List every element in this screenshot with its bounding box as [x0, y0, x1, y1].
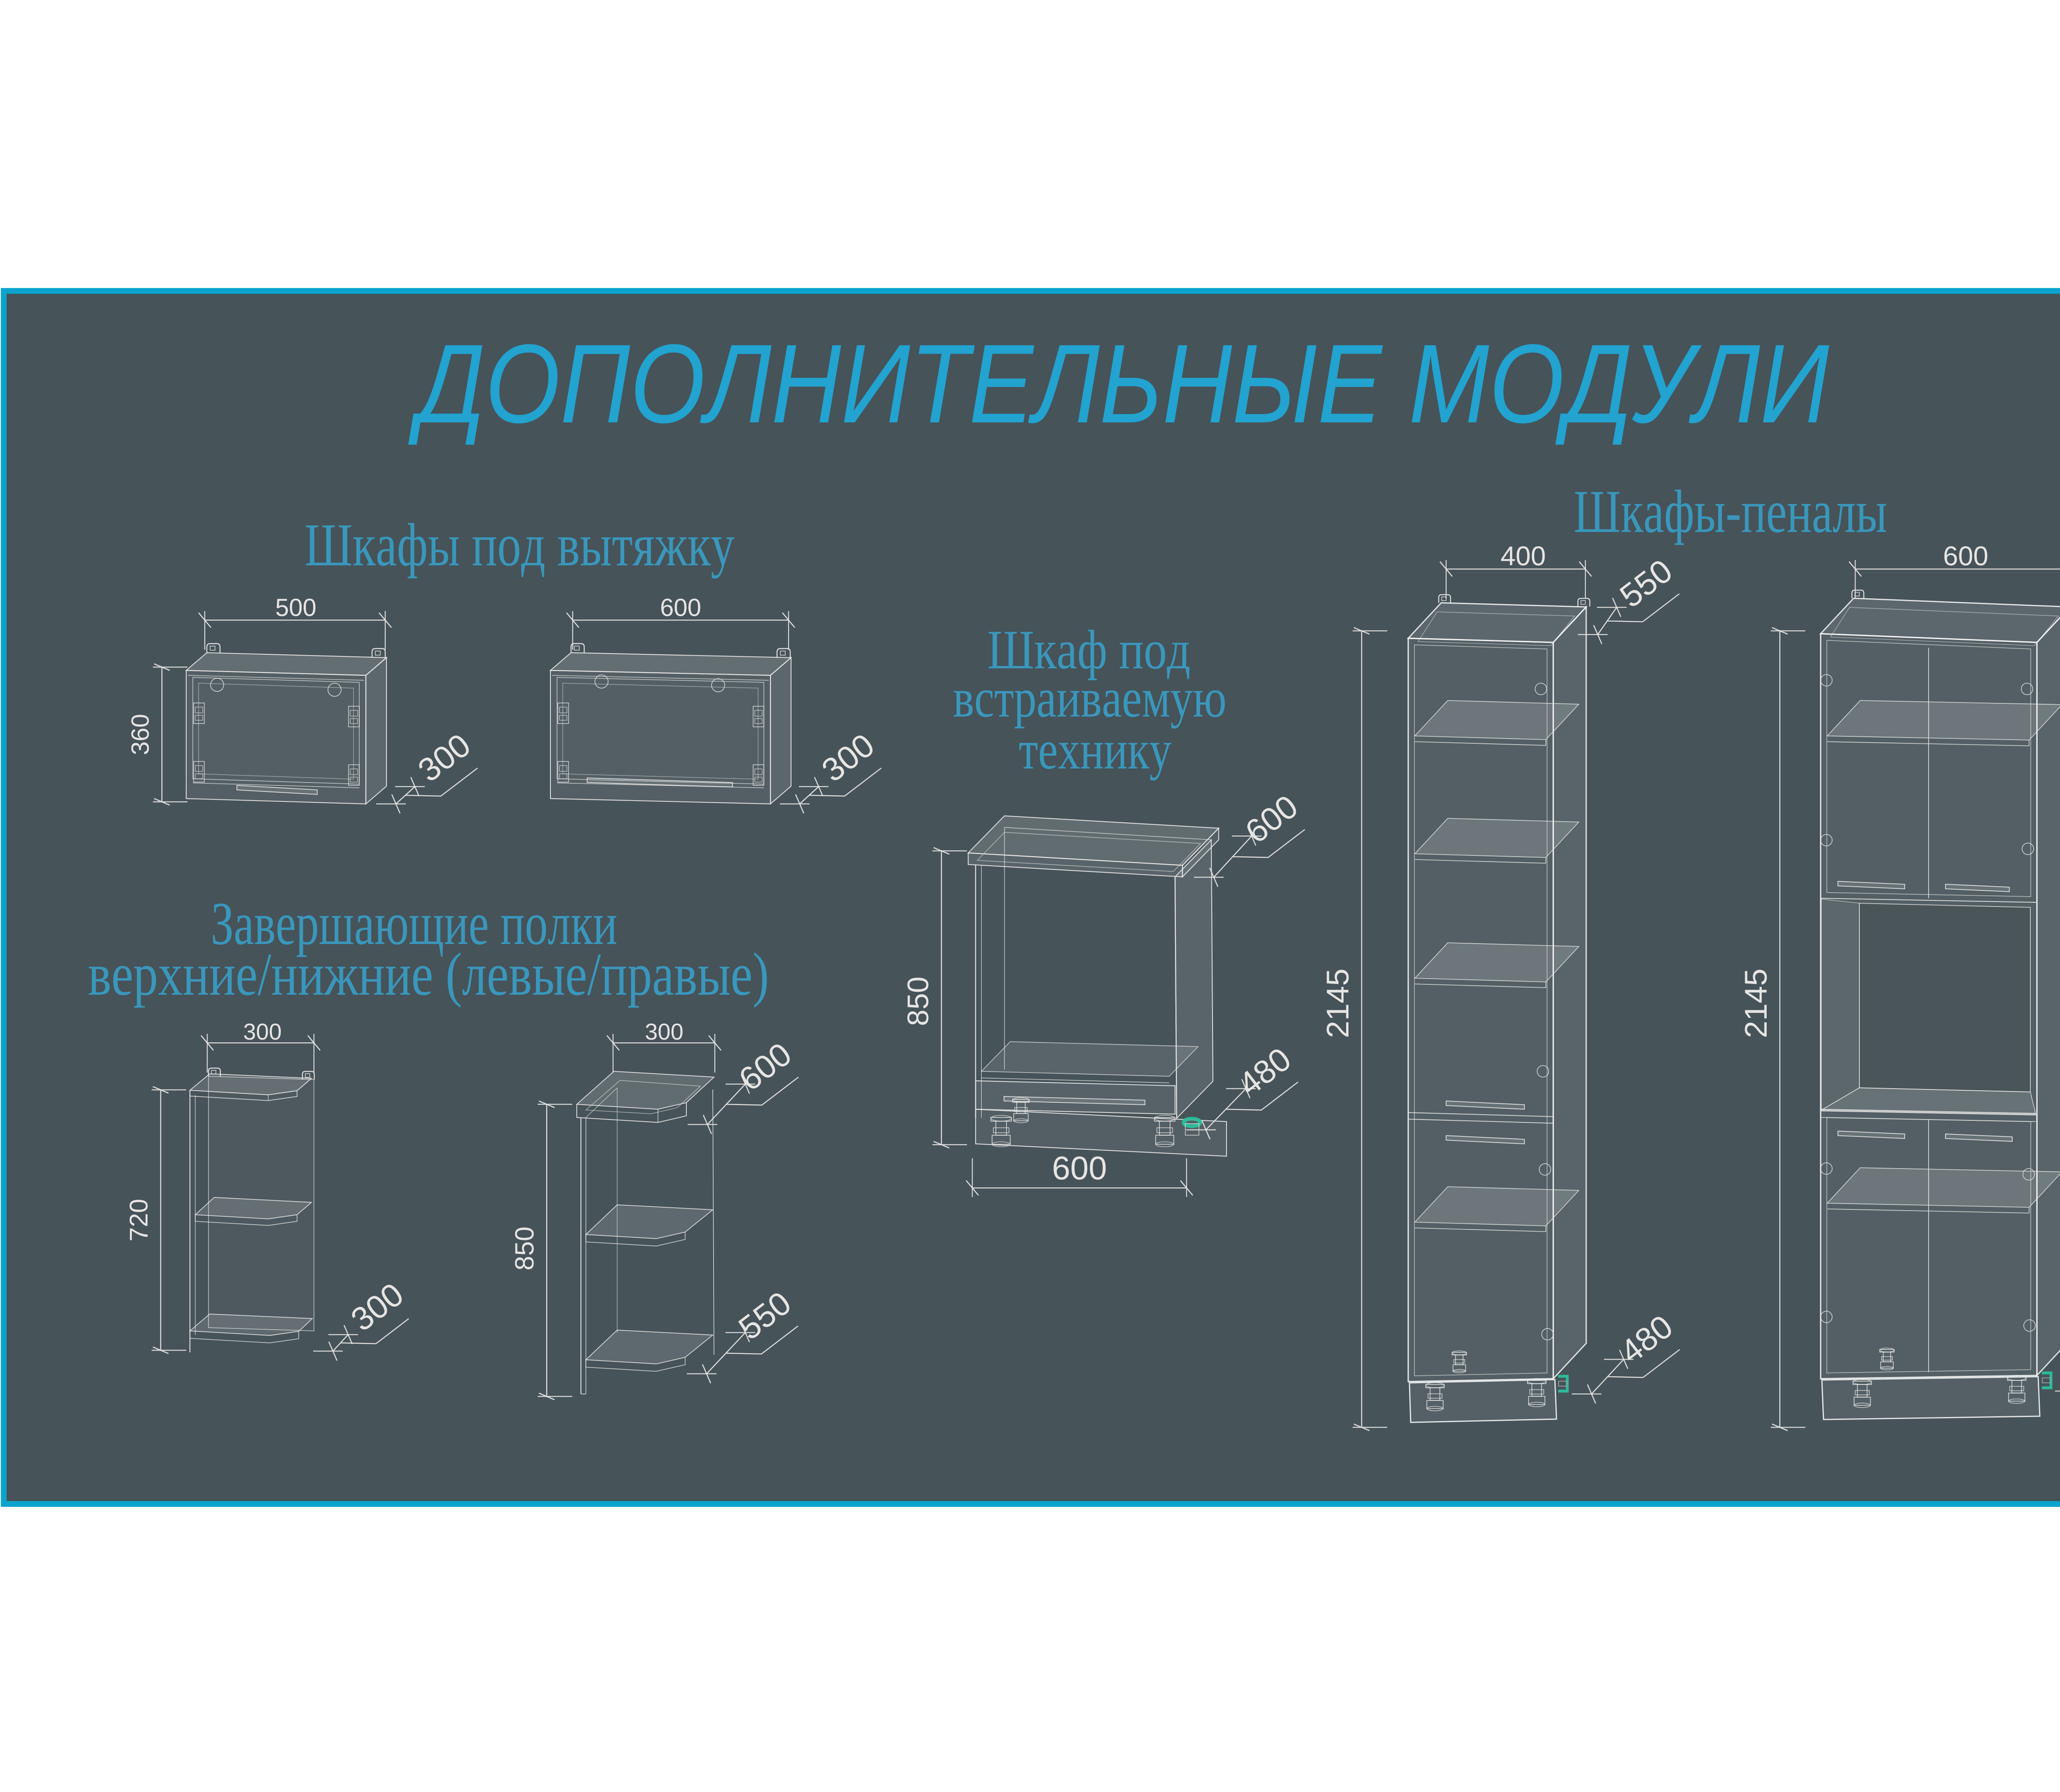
svg-text:850: 850: [510, 1227, 539, 1271]
svg-text:технику: технику: [1019, 719, 1172, 781]
svg-text:300: 300: [243, 1019, 281, 1045]
svg-text:600: 600: [660, 594, 701, 621]
svg-text:2145: 2145: [1320, 968, 1355, 1038]
svg-text:2145: 2145: [1739, 968, 1774, 1038]
svg-text:500: 500: [275, 594, 316, 621]
svg-text:360: 360: [126, 714, 154, 755]
svg-text:Шкафы-пеналы: Шкафы-пеналы: [1574, 478, 1887, 546]
svg-text:850: 850: [902, 977, 935, 1026]
svg-text:верхние/нижние (левые/правые): верхние/нижние (левые/правые): [88, 941, 769, 1008]
svg-text:600: 600: [1943, 541, 1988, 571]
svg-text:300: 300: [645, 1019, 683, 1045]
svg-text:ДОПОЛНИТЕЛЬНЫЕ МОДУЛИ: ДОПОЛНИТЕЛЬНЫЕ МОДУЛИ: [408, 321, 1830, 446]
svg-text:600: 600: [1052, 1150, 1107, 1186]
svg-text:400: 400: [1501, 541, 1546, 571]
svg-text:Шкафы под вытяжку: Шкафы под вытяжку: [304, 511, 735, 579]
svg-text:720: 720: [125, 1199, 153, 1241]
